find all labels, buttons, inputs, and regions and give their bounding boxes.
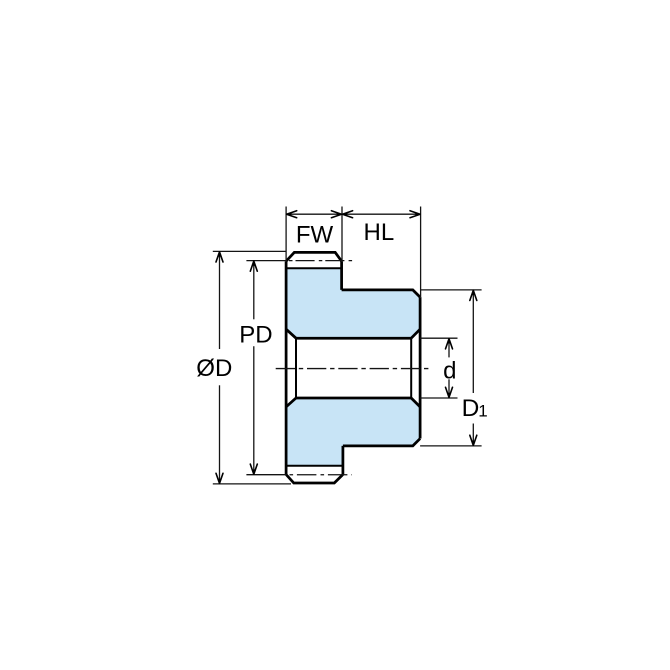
svg-text:D: D bbox=[462, 395, 480, 422]
svg-text:FW: FW bbox=[296, 221, 334, 248]
svg-text:PD: PD bbox=[239, 321, 272, 348]
svg-text:d: d bbox=[443, 358, 456, 385]
svg-text:ØD: ØD bbox=[196, 355, 232, 382]
svg-text:1: 1 bbox=[478, 401, 487, 420]
svg-text:HL: HL bbox=[364, 219, 395, 246]
